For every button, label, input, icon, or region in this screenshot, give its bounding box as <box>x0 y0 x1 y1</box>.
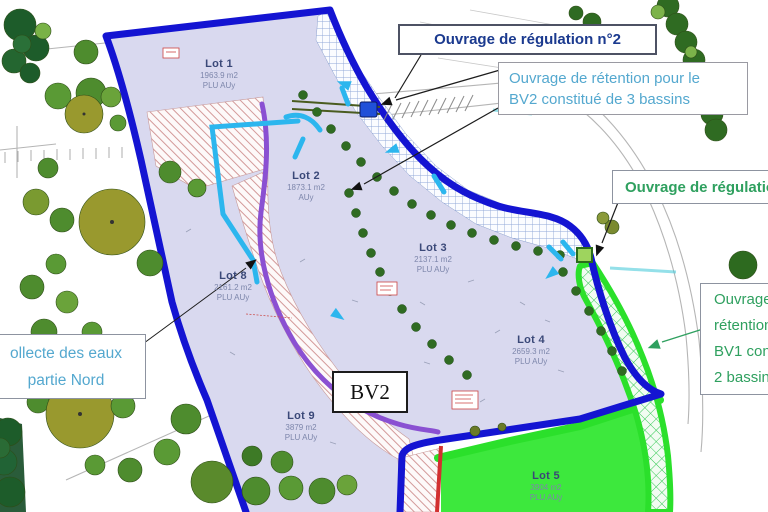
regulation-basin-1-marker <box>577 248 592 262</box>
annotation-line: 2 bassins <box>714 365 768 391</box>
annotation-line: rétention <box>714 313 768 339</box>
annotation-line: BV1 con <box>714 339 768 365</box>
site-plan-map: Lot 1 1963.9 m2 PLU AUy Lot 2 1873.1 m2 … <box>0 0 768 512</box>
regulation-basin-2-marker <box>360 102 377 117</box>
annotation-regulation-2: Ouvrage de régulation n°2 <box>398 24 657 55</box>
annotation-line: ollecte des eaux <box>10 340 122 367</box>
annotation-retention-bv1: Ouvrage rétention BV1 con 2 bassins <box>700 283 768 395</box>
annotation-line: partie Nord <box>28 367 105 394</box>
annotation-line: Ouvrage de rétention pour le <box>509 68 747 89</box>
annotation-line: BV2 constitué de 3 bassins <box>509 89 747 110</box>
annotation-regulation-1: Ouvrage de régulation <box>612 170 768 204</box>
annotation-line: Ouvrage <box>714 287 768 313</box>
annotation-retention-bv2: Ouvrage de rétention pour le BV2 constit… <box>498 62 748 115</box>
bv2-watershed-label: BV2 <box>332 371 408 413</box>
annotation-collecte-eaux-nord: ollecte des eaux partie Nord <box>0 334 146 399</box>
